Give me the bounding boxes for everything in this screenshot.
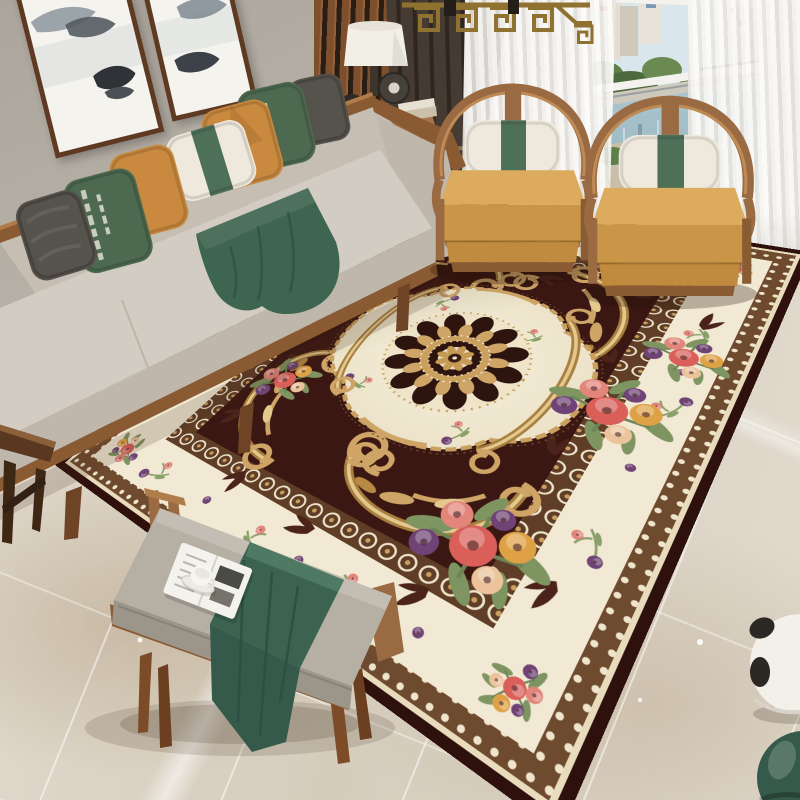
sofa-leg (396, 283, 410, 332)
armchair-left (430, 86, 595, 285)
lamp-stem (370, 64, 378, 96)
floor-sparkle (697, 639, 703, 645)
floor-sparkle (138, 638, 143, 643)
sofa-leg (64, 486, 82, 540)
floor-sparkle (638, 698, 642, 702)
fabric-sofa (0, 71, 470, 540)
sofa-leg (238, 402, 254, 454)
bench-leg (158, 664, 172, 748)
bench (85, 488, 404, 764)
armchair-right (582, 98, 757, 309)
chandelier-socket (508, 0, 519, 14)
living-room-photo: Bright modern Chinese-style living room … (0, 0, 800, 800)
brass-chandelier (402, 0, 592, 43)
green-floor-ornament (757, 731, 800, 800)
chandelier-socket (444, 0, 456, 16)
panda-ornament (746, 613, 800, 724)
furniture-layer (0, 0, 800, 800)
